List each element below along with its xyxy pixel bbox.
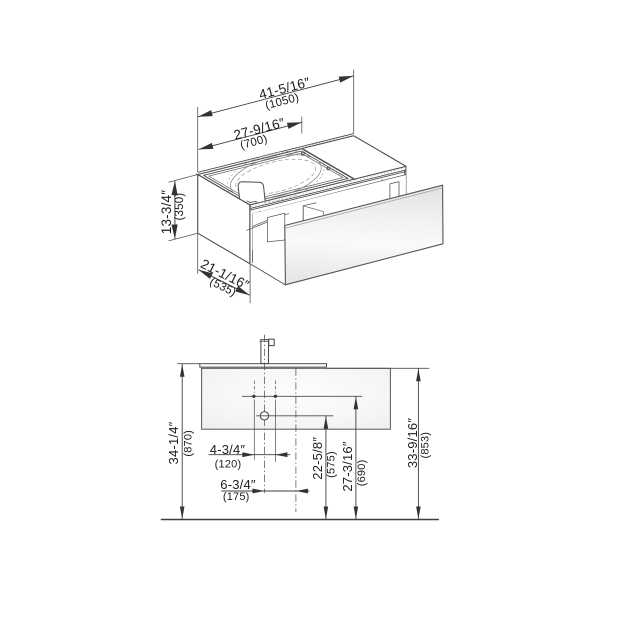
- svg-text:22-5/8″: 22-5/8″: [310, 437, 325, 480]
- svg-text:6-3/4″: 6-3/4″: [220, 477, 256, 492]
- svg-text:(350): (350): [174, 193, 186, 221]
- svg-text:(853): (853): [420, 432, 432, 459]
- svg-text:(120): (120): [215, 459, 242, 471]
- svg-text:33-9/16″: 33-9/16″: [405, 418, 420, 468]
- svg-text:13-3/4″: 13-3/4″: [159, 190, 174, 234]
- svg-text:(175): (175): [223, 491, 250, 503]
- svg-text:(870): (870): [182, 430, 194, 457]
- svg-text:(690): (690): [356, 460, 368, 487]
- svg-text:(575): (575): [326, 451, 338, 478]
- svg-text:27-3/16″: 27-3/16″: [340, 441, 355, 491]
- svg-text:4-3/4″: 4-3/4″: [210, 442, 246, 457]
- svg-text:34-1/4″: 34-1/4″: [166, 421, 181, 464]
